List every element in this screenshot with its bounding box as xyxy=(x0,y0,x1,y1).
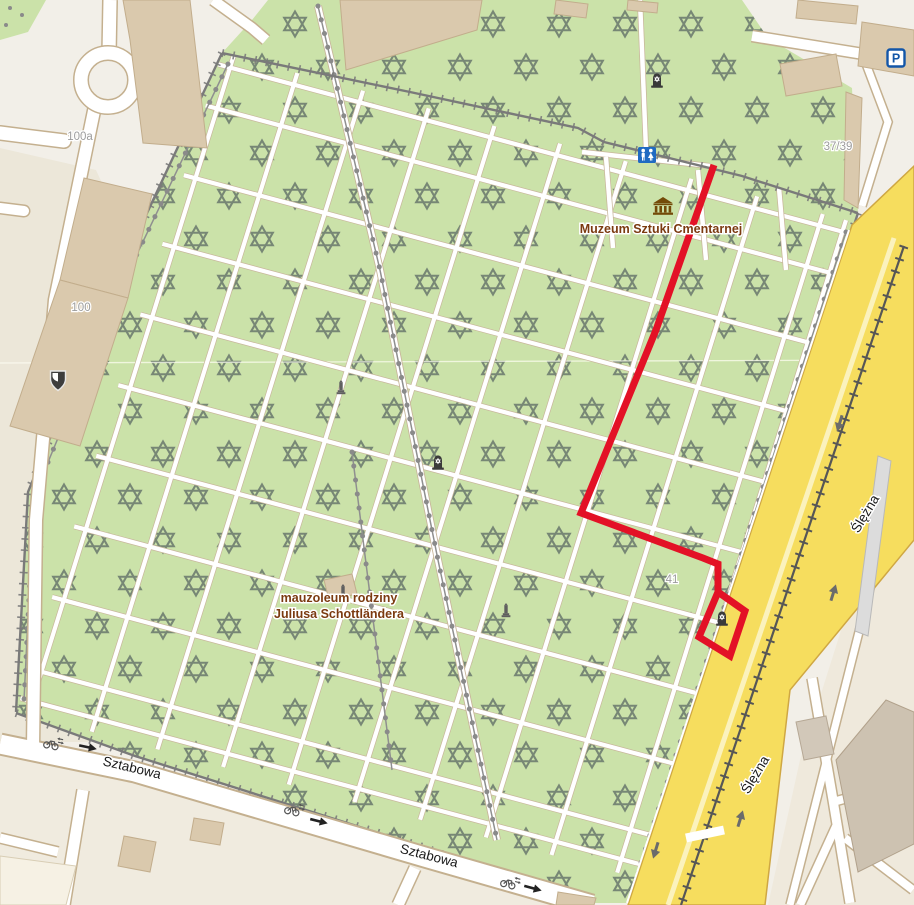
mausoleum-label-line2: Juliusa Schottländera xyxy=(274,607,405,621)
building xyxy=(858,22,914,76)
map-canvas[interactable]: P xyxy=(0,0,914,905)
museum-label: Muzeum Sztuki Cmentarnej xyxy=(580,222,743,236)
housenumber-100a: 100a xyxy=(67,131,93,143)
building xyxy=(118,836,156,872)
housenumber-37-39: 37/39 xyxy=(824,141,853,153)
building xyxy=(190,818,224,845)
housenumber-100: 100 xyxy=(71,302,90,314)
toilets-icon xyxy=(638,147,656,163)
parking-icon xyxy=(888,50,905,67)
housenumber-41: 41 xyxy=(666,574,679,586)
mausoleum-label-line1: mauzoleum rodziny xyxy=(281,591,398,605)
map-svg[interactable]: P xyxy=(0,0,914,905)
